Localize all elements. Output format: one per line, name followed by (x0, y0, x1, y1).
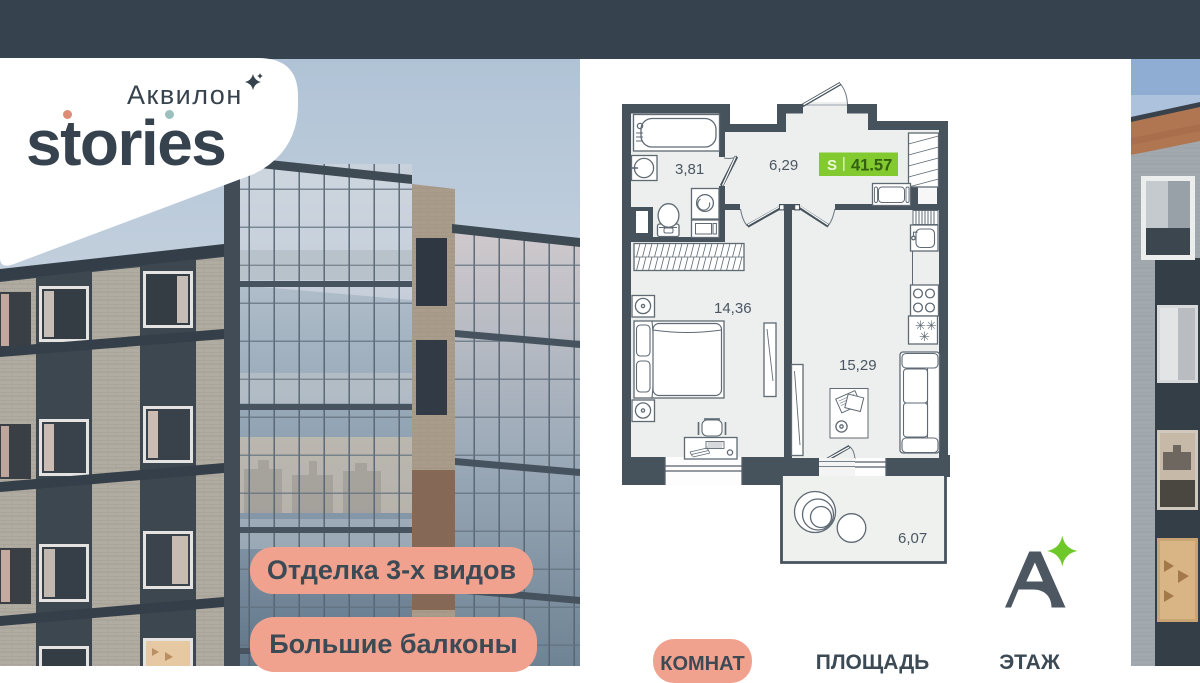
svg-text:S: S (827, 157, 837, 174)
svg-text:41.57: 41.57 (851, 157, 892, 175)
svg-text:6,29: 6,29 (769, 157, 798, 174)
svg-text:14,36: 14,36 (714, 300, 752, 317)
svg-text:✳: ✳ (919, 329, 930, 344)
svg-text:6,07: 6,07 (898, 530, 927, 547)
svg-text:3,81: 3,81 (675, 161, 704, 178)
svg-text:15,29: 15,29 (839, 357, 877, 374)
